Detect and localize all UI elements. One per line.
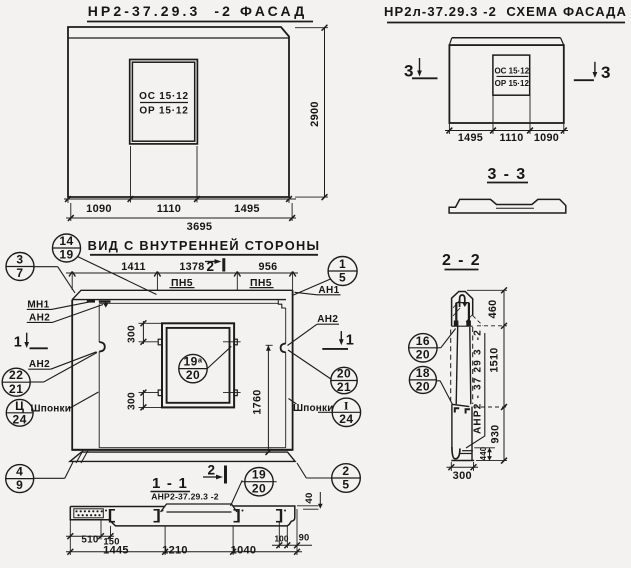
svg-text:2: 2 bbox=[342, 464, 349, 478]
svg-text:300: 300 bbox=[127, 392, 138, 410]
svg-text:19: 19 bbox=[252, 468, 266, 482]
svg-text:Шпонки: Шпонки bbox=[31, 404, 72, 415]
svg-text:I: I bbox=[344, 398, 349, 412]
svg-text:1090: 1090 bbox=[534, 132, 559, 144]
svg-text:24: 24 bbox=[13, 412, 27, 426]
svg-text:19: 19 bbox=[59, 248, 73, 262]
svg-text:21: 21 bbox=[9, 382, 23, 396]
svg-text:5: 5 bbox=[342, 478, 349, 492]
svg-text:1445: 1445 bbox=[103, 545, 129, 557]
svg-text:1110: 1110 bbox=[499, 132, 523, 144]
svg-text:АНР2-37.29.3 -2: АНР2-37.29.3 -2 bbox=[151, 492, 219, 502]
svg-text:1110: 1110 bbox=[157, 203, 181, 215]
svg-text:1: 1 bbox=[14, 335, 23, 351]
svg-text:460: 460 bbox=[487, 300, 499, 319]
svg-text:2 - 2: 2 - 2 bbox=[442, 252, 481, 269]
svg-text:20: 20 bbox=[416, 380, 430, 394]
svg-text:ОС 15·12: ОС 15·12 bbox=[494, 67, 529, 76]
svg-text:440: 440 bbox=[479, 446, 488, 460]
svg-text:1495: 1495 bbox=[234, 203, 260, 215]
svg-text:НР2-37.29.3 -2 ФАСАД: НР2-37.29.3 -2 ФАСАД bbox=[88, 3, 308, 19]
svg-text:100: 100 bbox=[275, 535, 289, 544]
svg-text:22: 22 bbox=[9, 368, 23, 382]
svg-text:ВИД С ВНУТРЕННЕЙ СТОРОНЫ: ВИД С ВНУТРЕННЕЙ СТОРОНЫ bbox=[88, 238, 321, 253]
svg-text:956: 956 bbox=[259, 261, 278, 273]
svg-text:ОР 15·12: ОР 15·12 bbox=[495, 79, 530, 88]
svg-text:18: 18 bbox=[416, 366, 430, 380]
svg-text:1210: 1210 bbox=[162, 545, 188, 557]
svg-text:5: 5 bbox=[339, 271, 346, 285]
svg-text:14: 14 bbox=[59, 234, 73, 248]
svg-text:300: 300 bbox=[453, 470, 472, 482]
svg-text:40: 40 bbox=[304, 492, 315, 503]
svg-text:20: 20 bbox=[416, 347, 430, 361]
svg-text:19а: 19а bbox=[183, 355, 202, 369]
svg-text:1378: 1378 bbox=[179, 261, 204, 273]
svg-text:90: 90 bbox=[299, 532, 310, 543]
svg-text:7: 7 bbox=[16, 266, 23, 280]
svg-text:НР2л-37.29.3 -2 СХЕМА ФАСАДА: НР2л-37.29.3 -2 СХЕМА ФАСАДА bbox=[384, 4, 627, 19]
svg-text:ОР 15·12: ОР 15·12 bbox=[139, 106, 188, 117]
svg-text:АН2: АН2 bbox=[29, 359, 50, 370]
svg-text:1510: 1510 bbox=[489, 347, 501, 372]
svg-text:1: 1 bbox=[339, 257, 346, 271]
svg-text:24: 24 bbox=[339, 412, 353, 426]
svg-text:1495: 1495 bbox=[458, 132, 483, 144]
svg-text:1: 1 bbox=[346, 333, 355, 349]
svg-text:1 - 1: 1 - 1 bbox=[152, 475, 188, 492]
svg-text:9: 9 bbox=[16, 478, 23, 492]
svg-text:300: 300 bbox=[127, 325, 138, 343]
svg-text:20: 20 bbox=[337, 367, 351, 381]
svg-text:АНР2 - 37 29 3 -2: АНР2 - 37 29 3 -2 bbox=[473, 329, 484, 434]
svg-text:2: 2 bbox=[207, 463, 215, 478]
svg-text:3 - 3: 3 - 3 bbox=[487, 166, 526, 183]
svg-text:1760: 1760 bbox=[252, 389, 264, 414]
svg-text:16: 16 bbox=[416, 334, 430, 348]
svg-text:1090: 1090 bbox=[86, 203, 112, 215]
svg-text:510: 510 bbox=[81, 534, 98, 545]
svg-text:3: 3 bbox=[16, 253, 23, 267]
svg-text:АН2: АН2 bbox=[317, 314, 338, 325]
svg-text:4: 4 bbox=[16, 465, 23, 479]
svg-text:ОС 15·12: ОС 15·12 bbox=[139, 91, 189, 102]
svg-text:21: 21 bbox=[337, 380, 351, 394]
svg-text:1040: 1040 bbox=[231, 545, 257, 557]
svg-text:20: 20 bbox=[252, 481, 266, 495]
svg-text:2900: 2900 bbox=[309, 101, 321, 127]
svg-text:20: 20 bbox=[186, 368, 200, 382]
svg-text:1411: 1411 bbox=[121, 261, 146, 273]
svg-text:3695: 3695 bbox=[187, 221, 213, 233]
svg-text:3: 3 bbox=[601, 63, 611, 82]
svg-text:930: 930 bbox=[490, 425, 502, 444]
svg-text:Ц: Ц bbox=[15, 399, 24, 413]
